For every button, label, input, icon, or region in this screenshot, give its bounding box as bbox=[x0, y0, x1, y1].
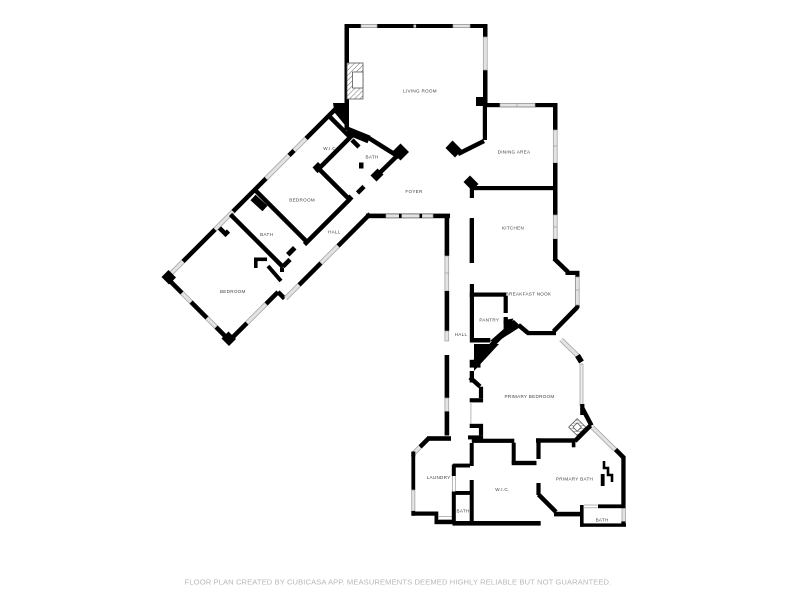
svg-text:PRIMARY BEDROOM: PRIMARY BEDROOM bbox=[505, 394, 555, 399]
svg-text:BEDROOM: BEDROOM bbox=[220, 289, 246, 294]
svg-text:BEDROOM: BEDROOM bbox=[289, 198, 315, 203]
svg-text:PANTRY: PANTRY bbox=[479, 317, 499, 322]
svg-text:BATH: BATH bbox=[260, 232, 273, 237]
svg-text:FOYER: FOYER bbox=[405, 189, 423, 194]
svg-text:BATH: BATH bbox=[365, 154, 378, 159]
svg-text:BATH: BATH bbox=[596, 517, 609, 522]
svg-text:FLOOR PLAN CREATED BY CUBICASA: FLOOR PLAN CREATED BY CUBICASA APP. MEAS… bbox=[185, 578, 612, 587]
svg-text:BREAKFAST NOOK: BREAKFAST NOOK bbox=[506, 291, 552, 296]
svg-text:HALL: HALL bbox=[455, 332, 468, 337]
svg-text:KITCHEN: KITCHEN bbox=[502, 225, 524, 230]
svg-text:PRIMARY BATH: PRIMARY BATH bbox=[556, 477, 593, 482]
svg-text:LIVING ROOM: LIVING ROOM bbox=[403, 89, 437, 94]
svg-text:DINING AREA: DINING AREA bbox=[498, 150, 531, 155]
svg-text:W.I.C.: W.I.C. bbox=[323, 146, 337, 151]
svg-text:W.I.C.: W.I.C. bbox=[495, 487, 509, 492]
svg-text:HALL: HALL bbox=[328, 230, 341, 235]
svg-text:BATH: BATH bbox=[456, 509, 469, 514]
svg-text:LAUNDRY: LAUNDRY bbox=[427, 475, 451, 480]
